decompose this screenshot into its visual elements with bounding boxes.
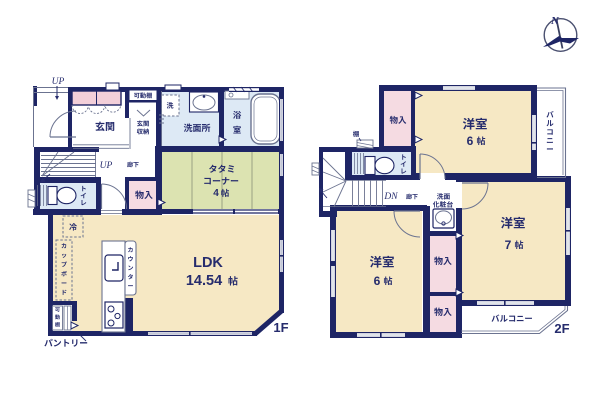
- svg-text:UP: UP: [100, 161, 113, 171]
- svg-text:14.54: 14.54: [186, 273, 222, 289]
- svg-text:2F: 2F: [554, 321, 569, 336]
- svg-text:UP: UP: [52, 77, 65, 87]
- svg-text:1F: 1F: [273, 320, 288, 335]
- svg-text:N: N: [550, 15, 560, 27]
- svg-text:6: 6: [374, 274, 381, 288]
- svg-text:6: 6: [467, 134, 474, 148]
- svg-text:7: 7: [505, 238, 512, 252]
- svg-text:LDK: LDK: [193, 255, 223, 271]
- svg-text:DN: DN: [383, 192, 398, 202]
- svg-text:4: 4: [213, 188, 219, 199]
